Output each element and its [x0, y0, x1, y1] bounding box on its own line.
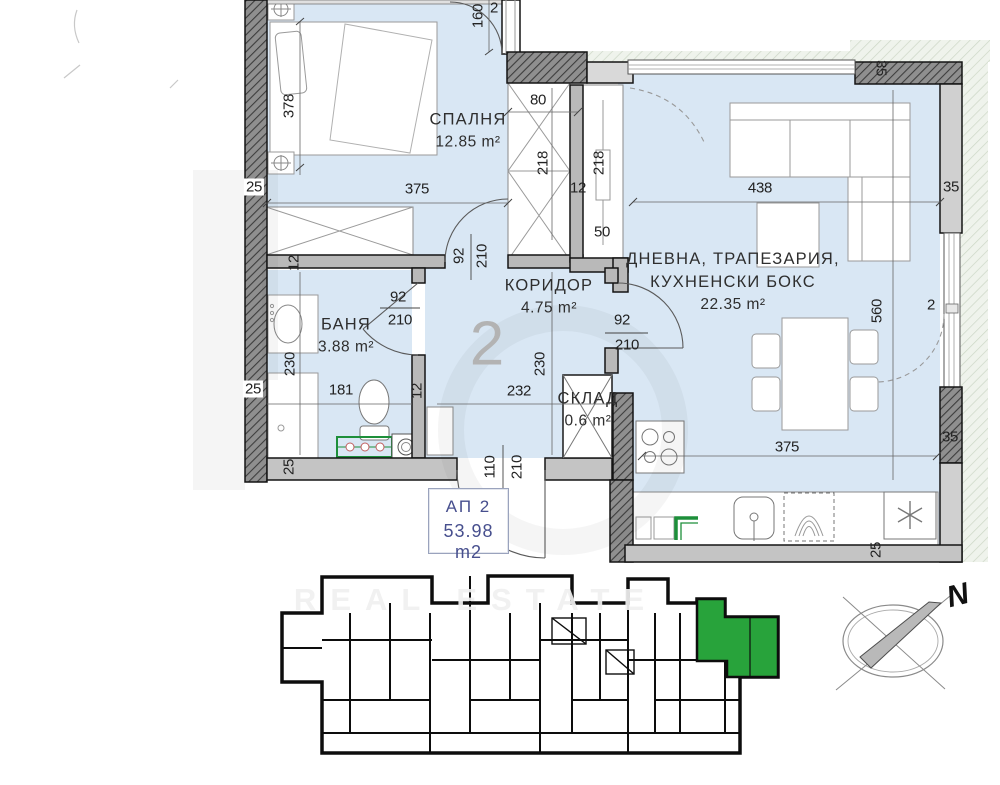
dimension-label: 375 — [775, 439, 799, 456]
dimension-label: 2 — [490, 0, 498, 17]
dimension-label: 25 — [244, 179, 264, 196]
dimension-label: 35 — [943, 179, 959, 196]
shower-tray — [268, 373, 318, 458]
dimension-label: 110 — [482, 455, 499, 478]
dimension-label: 181 — [329, 382, 353, 399]
dishwasher — [784, 493, 834, 541]
dimension-label: 218 — [591, 151, 608, 175]
dimension-label: 12 — [570, 180, 586, 197]
dimension-label: 375 — [405, 181, 429, 198]
watermark-artifacts — [64, 10, 178, 88]
dimension-label: 25 — [868, 542, 885, 558]
dimension-label: 92 — [451, 248, 468, 264]
room-label-living: ДНЕВНА, ТРАПЕЗАРИЯ,КУХНЕНСКИ БОКС22.35 m… — [626, 248, 840, 316]
wardrobe-low — [266, 207, 413, 255]
room-label-storage: СКЛАД0.6 m² — [557, 388, 618, 433]
room-label-bathroom: БАНЯ3.88 m² — [318, 314, 374, 359]
dimension-label: 210 — [474, 244, 491, 268]
apartment-number-watermark: 2 — [470, 309, 504, 380]
apartment-badge-title: АП 2 — [429, 497, 508, 517]
dining-table — [782, 318, 848, 430]
dimension-label: 230 — [532, 352, 549, 376]
apartment-badge-area: 53.98 m2 — [429, 521, 508, 563]
dimension-label: 210 — [615, 337, 639, 354]
dimension-label: 218 — [535, 151, 552, 175]
dimension-label: 210 — [509, 455, 526, 479]
toilet — [359, 380, 389, 440]
dimension-label: 25 — [281, 459, 298, 475]
dimension-label: 80 — [530, 92, 546, 109]
dimension-label: 232 — [507, 383, 531, 400]
dining-chair — [752, 334, 780, 368]
dimension-label: 12 — [286, 255, 303, 271]
dimension-label: 160 — [470, 4, 487, 28]
dimension-label: 560 — [869, 299, 886, 323]
dimension-label: 230 — [282, 352, 299, 376]
dimension-label: 2 — [927, 297, 935, 314]
dining-chair — [850, 330, 878, 364]
dimension-label: 378 — [281, 94, 298, 118]
dimension-label: 12 — [409, 383, 426, 399]
room-label-corridor: КОРИДОР4.75 m² — [505, 275, 594, 320]
dimension-label: 92 — [390, 289, 406, 306]
kitchen-sink — [734, 497, 774, 541]
bed — [270, 22, 437, 155]
apartment-badge: АП 2 53.98 m2 — [428, 488, 509, 554]
watermark-text: REAL ESTATE — [294, 582, 658, 618]
dimension-label: 92 — [614, 312, 630, 329]
room-label-bedroom: СПАЛНЯ12.85 m² — [429, 109, 506, 154]
floor-plan-page: 2 СПАЛНЯ12.85 m²БАНЯ3.88 m²КОРИДОР4.75 m… — [0, 0, 1000, 785]
dimension-label: 25 — [243, 381, 263, 398]
compass-icon — [836, 596, 950, 690]
dimension-label: 50 — [594, 224, 610, 241]
dining-chair — [752, 377, 780, 411]
dimension-label: 210 — [388, 312, 412, 329]
dimension-label: 438 — [748, 180, 772, 197]
dimension-label: 35 — [873, 60, 890, 76]
fridge — [884, 492, 936, 539]
dimension-label: 35 — [942, 429, 958, 446]
dining-chair — [850, 377, 878, 411]
